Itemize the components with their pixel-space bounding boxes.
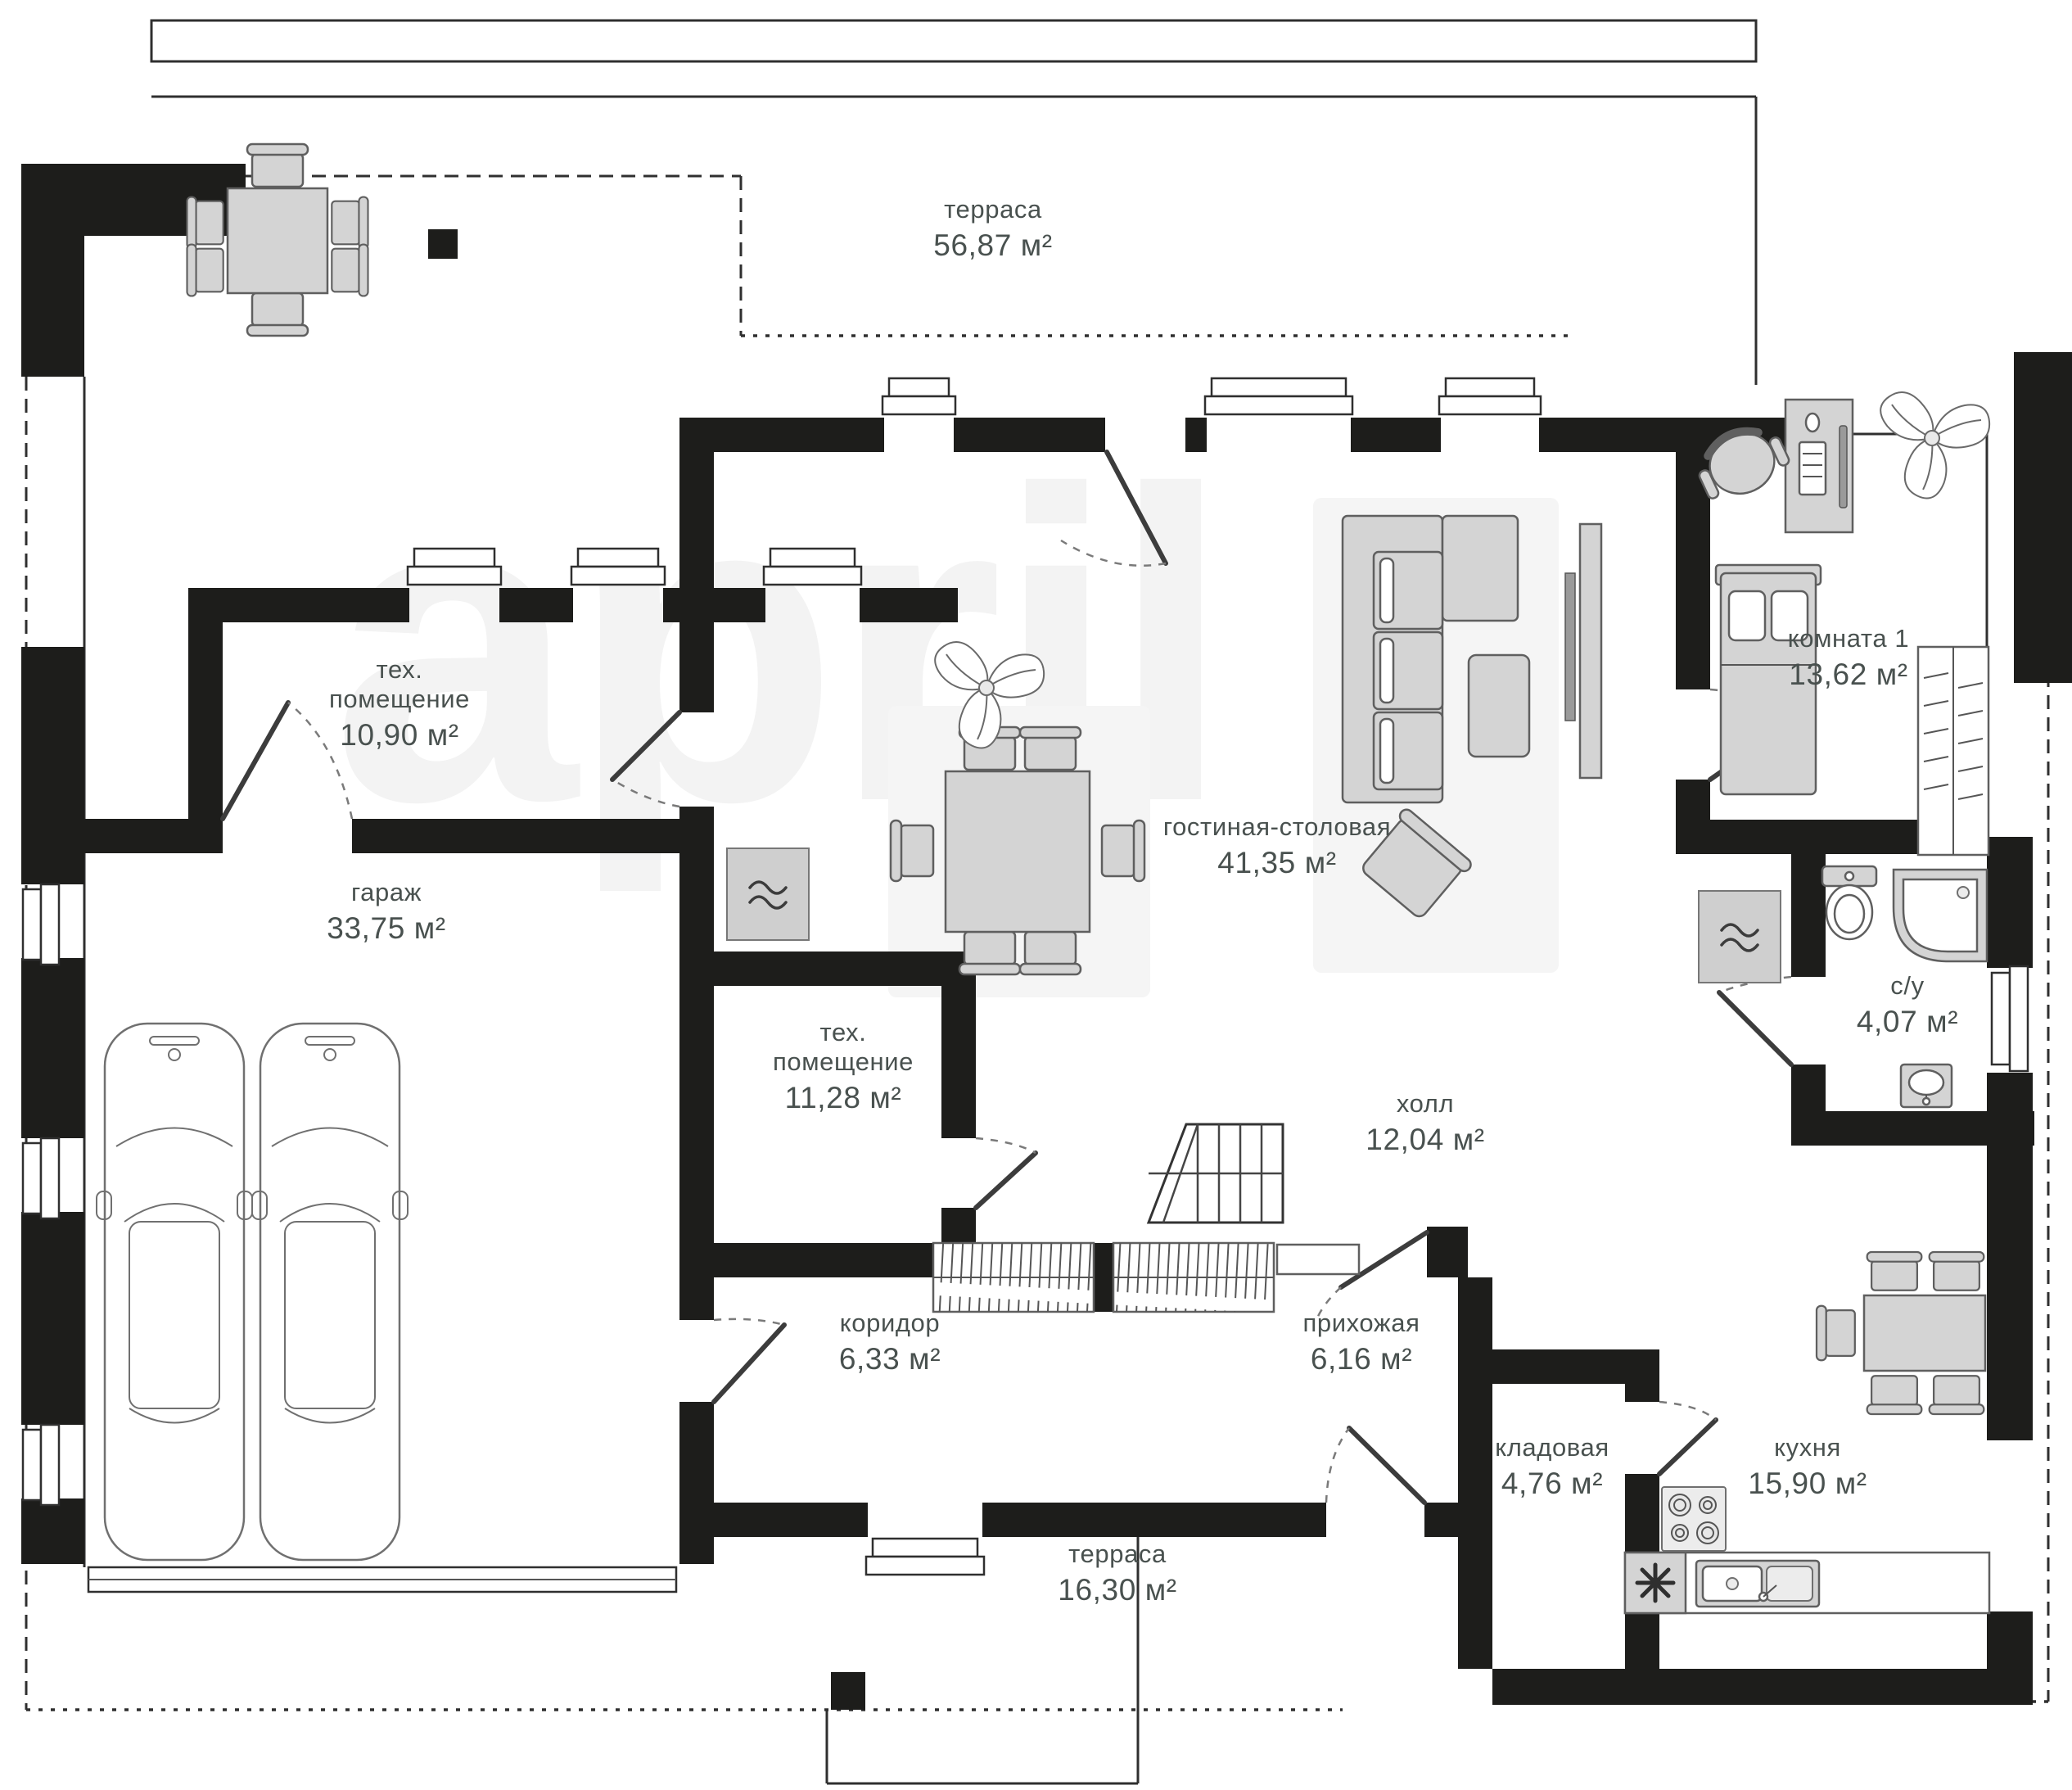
wall <box>679 952 976 986</box>
water-heater-icon <box>1699 891 1781 983</box>
kitchen-sink-icon <box>1696 1561 1819 1607</box>
garage-furniture <box>88 1024 676 1592</box>
wall <box>428 229 458 259</box>
wall <box>21 647 84 884</box>
door-swing <box>714 1319 784 1402</box>
window <box>1439 378 1541 414</box>
window <box>764 549 861 585</box>
toilet-icon <box>1822 866 1876 939</box>
window <box>23 1425 59 1505</box>
floor-plan-drawing <box>0 0 2072 1790</box>
door-swing <box>1719 977 1791 1065</box>
wall <box>860 588 958 622</box>
room-label-room-1: комната 1 13,62 м² <box>1788 624 1910 692</box>
fridge-icon <box>1625 1553 1686 1613</box>
wall <box>1424 1503 1458 1537</box>
door-swing <box>1061 452 1166 566</box>
window <box>23 884 59 965</box>
window <box>23 1138 59 1218</box>
wall <box>1094 1243 1113 1312</box>
wall <box>982 1503 1326 1537</box>
window <box>1992 966 2028 1071</box>
garage-door-icon <box>88 1567 676 1592</box>
wall <box>1791 1065 1826 1111</box>
door-swing <box>976 1138 1036 1208</box>
room-label-garage: гараж 33,75 м² <box>327 878 445 946</box>
ottoman-icon <box>1469 655 1529 757</box>
wall <box>2014 352 2072 683</box>
window <box>883 378 955 414</box>
wall <box>1458 1349 1659 1384</box>
floor-plan: april <box>0 0 2072 1790</box>
wall <box>679 418 714 712</box>
shelf-icon <box>1277 1245 1359 1274</box>
wall <box>679 1243 933 1277</box>
shower-icon <box>1894 870 1987 961</box>
car-icon <box>97 1024 252 1560</box>
room-label-tech-room-2: тех. помещение 11,28 м² <box>770 1018 917 1115</box>
wall <box>188 588 223 853</box>
wall <box>663 588 765 622</box>
door-swing <box>1326 1428 1424 1503</box>
tv-panel-icon <box>1565 524 1601 778</box>
wall <box>1427 1227 1468 1277</box>
wardrobe-icon <box>933 1243 1094 1312</box>
door-swing <box>1659 1402 1716 1474</box>
room-label-terrace-top: терраса 56,87 м² <box>933 195 1052 263</box>
wall <box>21 958 84 1138</box>
room-label-terrace-bottom: терраса 16,30 м² <box>1058 1539 1176 1607</box>
wall <box>679 1402 714 1564</box>
wall <box>1185 418 1207 452</box>
room-label-pantry: кладовая 4,76 м² <box>1495 1433 1609 1501</box>
wall <box>1625 1384 1659 1402</box>
wall <box>1987 837 2033 968</box>
wall <box>1492 1669 2033 1705</box>
wall <box>84 819 223 853</box>
window <box>1205 378 1352 414</box>
window <box>408 549 501 585</box>
window <box>866 1539 984 1575</box>
desk-icon <box>1785 400 1853 532</box>
wall <box>1351 418 1441 452</box>
kitchen-table-icon <box>1817 1252 1985 1414</box>
wall <box>941 986 976 1138</box>
wall <box>21 1212 84 1425</box>
wall <box>21 1498 84 1564</box>
room-label-hall: холл 12,04 м² <box>1366 1089 1484 1157</box>
wall <box>954 418 1105 452</box>
stairs-icon <box>1149 1124 1283 1223</box>
stove-icon <box>1662 1487 1726 1551</box>
room1-furniture <box>1689 383 1989 855</box>
room-label-living-dining: гостиная-столовая 41,35 м² <box>1163 812 1391 880</box>
wall <box>1987 1611 2033 1669</box>
wardrobe-icon <box>1113 1243 1274 1312</box>
wall <box>1458 1277 1492 1669</box>
room-label-bathroom: с/у 4,07 м² <box>1857 971 1958 1039</box>
plant-icon <box>1875 383 1989 504</box>
wall <box>21 164 84 377</box>
wall <box>1791 854 1826 977</box>
wall <box>941 1208 976 1243</box>
living-room-furniture <box>727 516 1781 983</box>
sink-icon <box>1901 1065 1952 1107</box>
car-icon <box>252 1024 408 1560</box>
water-heater-icon <box>727 848 809 940</box>
wall <box>679 807 714 1320</box>
window <box>571 549 665 585</box>
wall <box>499 588 573 622</box>
wall <box>352 819 679 853</box>
wall <box>831 1672 865 1710</box>
wall <box>714 418 884 452</box>
door-swing <box>612 712 679 807</box>
wall <box>714 1503 868 1537</box>
room-label-entry-hall: прихожая 6,16 м² <box>1303 1309 1420 1376</box>
room-label-kitchen: кухня 15,90 м² <box>1748 1433 1867 1501</box>
room-label-tech-room-1: тех. помещение 10,90 м² <box>326 655 473 753</box>
room-label-corridor: коридор 6,33 м² <box>839 1309 941 1376</box>
wall <box>1987 1073 2033 1440</box>
closet-icon <box>1918 647 1988 855</box>
